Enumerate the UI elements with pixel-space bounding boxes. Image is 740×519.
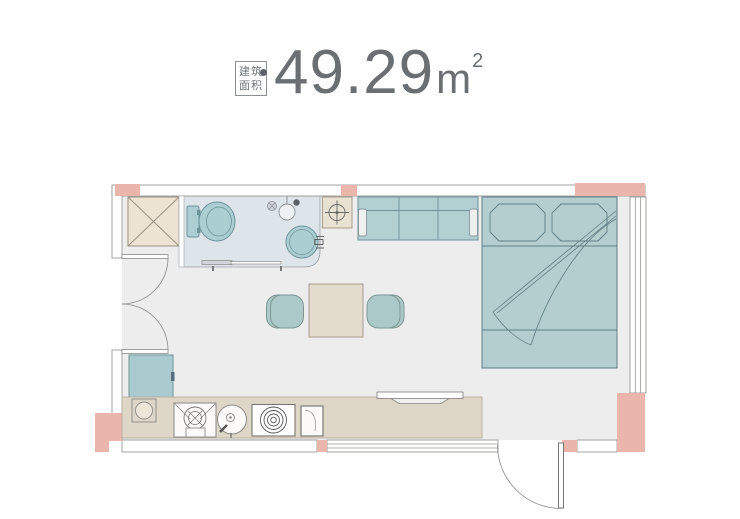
dining-table	[309, 284, 363, 337]
top-wall	[112, 185, 645, 196]
exhaust-unit	[323, 197, 353, 228]
bottom-window	[327, 440, 498, 452]
pillow-right	[552, 204, 607, 241]
pink-corner-bottom-right	[617, 393, 645, 452]
right-window	[630, 197, 646, 393]
sink	[174, 403, 216, 437]
pink-corner-bottom-left	[95, 413, 122, 441]
pink-bottom-left-foot	[95, 441, 109, 452]
cutting-board	[301, 406, 323, 436]
pink-bottom-mid	[317, 440, 327, 452]
sofa	[358, 197, 478, 240]
pink-top-right	[575, 183, 645, 196]
floor-plan	[0, 0, 740, 519]
entry-door	[498, 443, 564, 509]
toilet	[187, 202, 235, 241]
stool-left	[267, 295, 304, 328]
stool-right	[367, 295, 404, 328]
floor-drain-icon	[268, 202, 277, 211]
floor-plan-page: 建筑 面积 49.29 m 2	[0, 0, 740, 519]
pillow-left	[490, 204, 545, 241]
bottom-wall-right	[577, 440, 617, 452]
pink-top-mid	[341, 185, 357, 196]
bottom-wall-left	[122, 440, 317, 452]
pink-top-left	[115, 184, 140, 196]
pink-bottom-door	[562, 440, 577, 452]
cooktop	[252, 405, 295, 437]
double-bed	[482, 197, 617, 368]
refrigerator	[129, 355, 175, 398]
